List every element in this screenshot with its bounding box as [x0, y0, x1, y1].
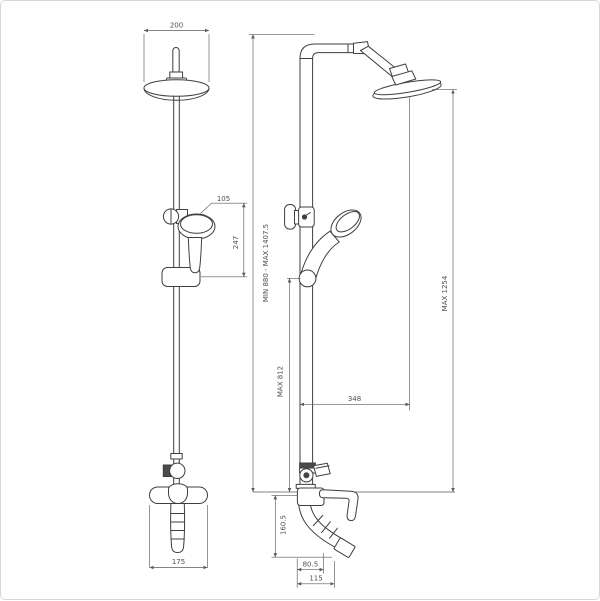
- mixer-side: [296, 484, 358, 557]
- mixer-front: [150, 484, 208, 553]
- diverter-side: [300, 463, 331, 482]
- dim-hand-shower-max-height: MAX 812: [277, 278, 301, 492]
- technical-drawing: 200 105: [1, 1, 600, 601]
- mixer-lever-side: [319, 490, 358, 521]
- side-view: MIN 880 - MAX 1407.5 MAX 812 MAX 1254 34…: [249, 34, 457, 587]
- shower-arm-pin-front: [173, 48, 179, 74]
- spout-outer-side: [299, 506, 340, 550]
- dim-max-1254-label: MAX 1254: [441, 275, 449, 311]
- dim-hand-shower-width: 105: [201, 195, 248, 214]
- dim-overhead-max-height: MAX 1254: [432, 90, 457, 492]
- hand-shower-handle-front: [188, 238, 201, 273]
- dim-hand-shower-height: 247: [201, 203, 247, 277]
- dim-160-5-label: 160.5: [279, 515, 287, 535]
- dim-115-label: 115: [309, 575, 322, 583]
- dim-80-5-label: 80.5: [303, 560, 319, 568]
- overhead-shower-side: [354, 42, 443, 103]
- dim-247-label: 247: [232, 236, 240, 249]
- dim-105-label: 105: [217, 195, 230, 203]
- diverter-front: [163, 454, 185, 479]
- hand-shower-head-face: [181, 215, 213, 234]
- dim-min-max-label: MIN 880 - MAX 1407.5: [262, 224, 270, 302]
- arm-collar-front: [170, 72, 183, 78]
- hose-cone-side: [299, 270, 316, 287]
- dim-348-label: 348: [348, 395, 361, 403]
- diverter-knob-side: [314, 463, 331, 476]
- bracket-screw-side: [302, 214, 307, 219]
- hand-shower-front: [162, 209, 215, 287]
- front-view: 200 105: [144, 22, 247, 568]
- dim-200-label: 200: [170, 22, 183, 30]
- wall-bracket-side: [285, 205, 315, 230]
- dim-175-label: 175: [172, 558, 185, 566]
- overhead-shower-front: [144, 48, 209, 101]
- head-face-front: [144, 80, 209, 97]
- dim-max-812-label: MAX 812: [277, 366, 285, 397]
- mixer-lever-front: [171, 504, 185, 553]
- riser-pipe-front: [174, 96, 180, 487]
- spout-aerator-side: [334, 538, 356, 558]
- drawing-canvas: 200 105: [0, 0, 600, 600]
- cartridge-dome-front: [169, 484, 188, 504]
